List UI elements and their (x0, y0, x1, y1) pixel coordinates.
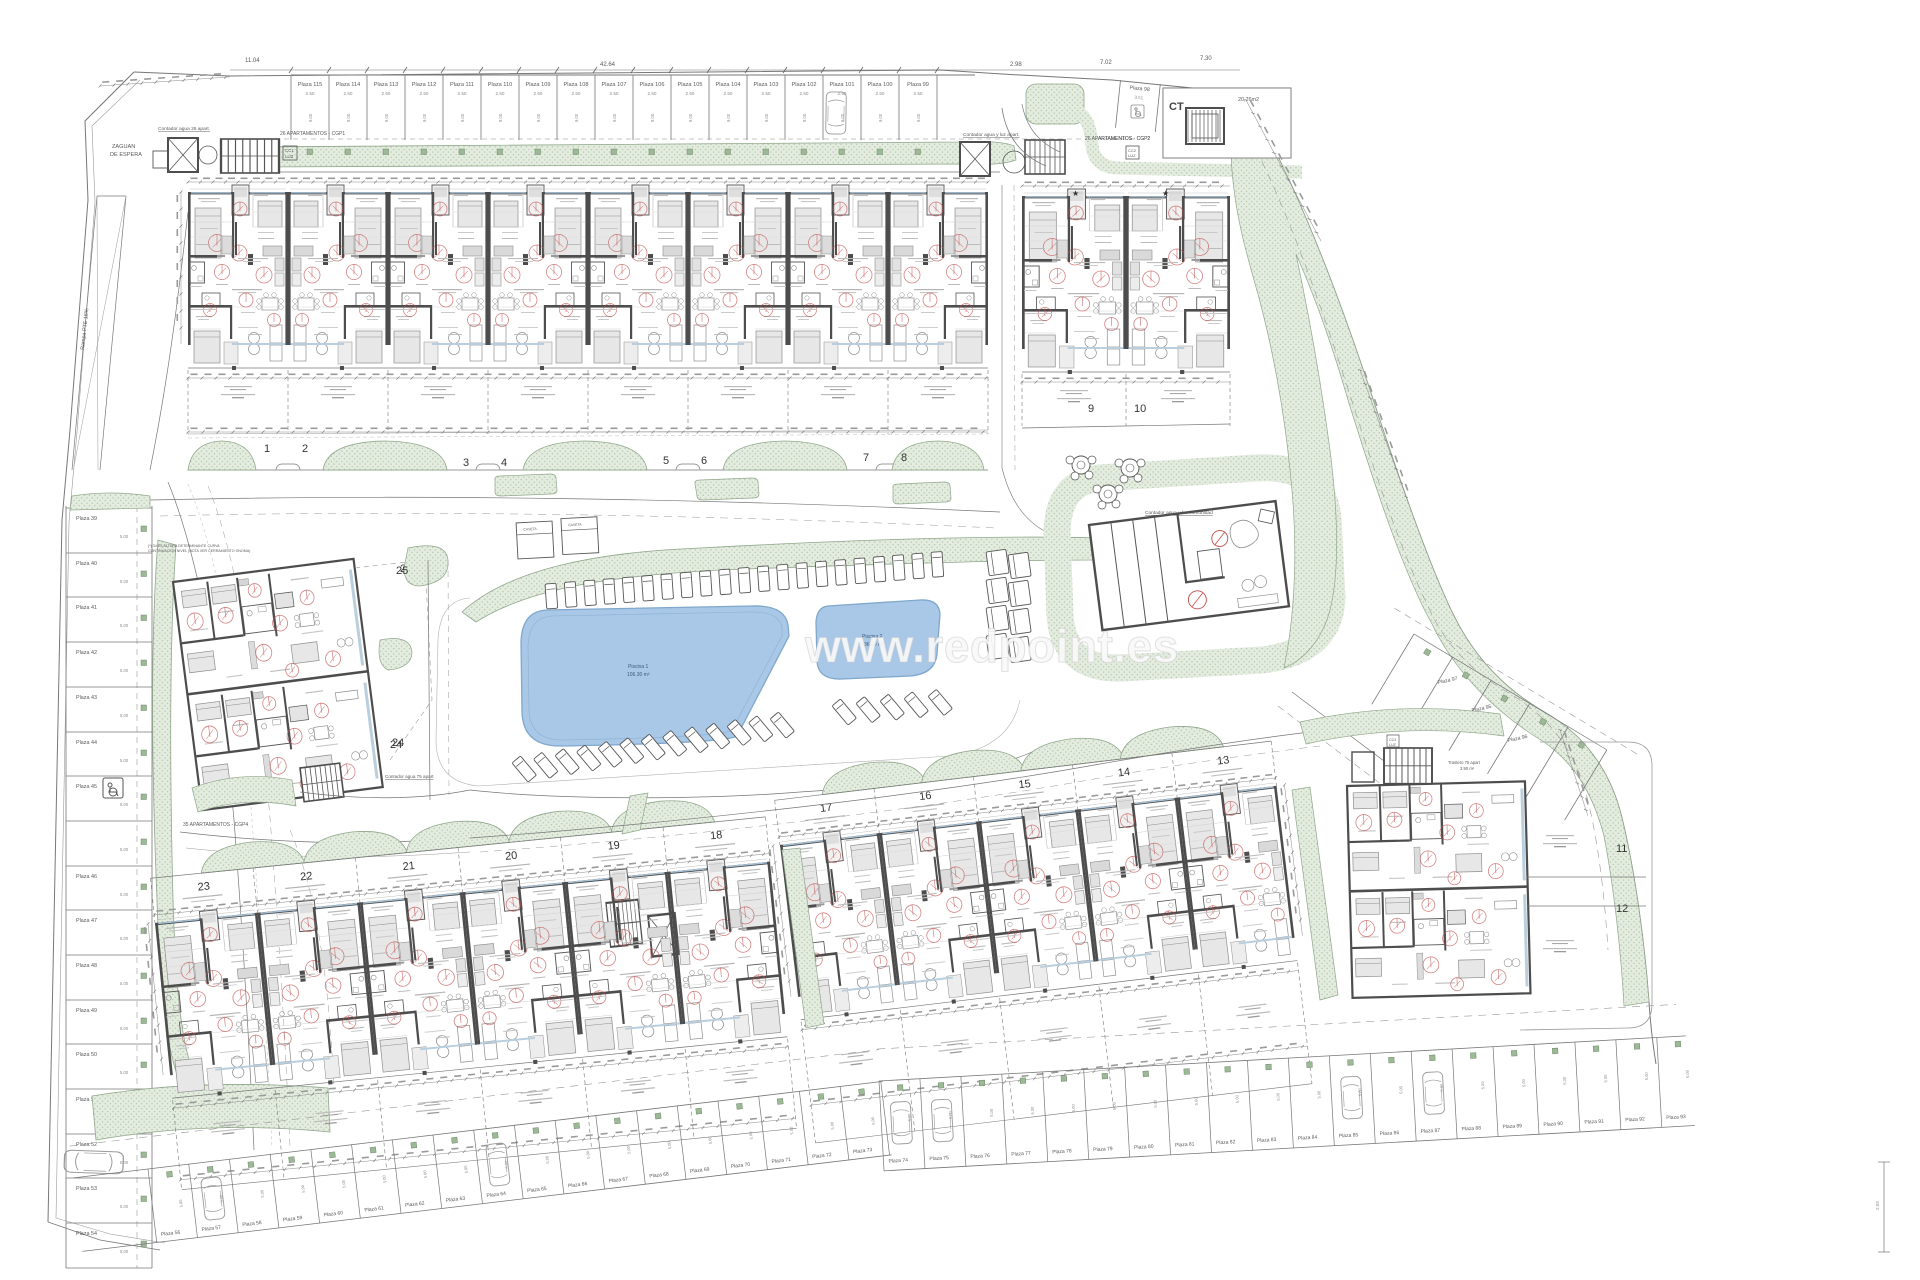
svg-text:2.50: 2.50 (496, 91, 505, 96)
svg-text:2.50: 2.50 (686, 91, 695, 96)
svg-text:★: ★ (1072, 189, 1079, 198)
svg-text:Plaza 75: Plaza 75 (929, 1155, 949, 1162)
svg-text:2.50: 2.50 (800, 91, 809, 96)
svg-text:5.00: 5.00 (748, 1131, 754, 1140)
svg-text:5.00: 5.00 (1480, 1081, 1485, 1090)
svg-text:9.00: 9.00 (650, 113, 655, 122)
svg-text:9.00: 9.00 (460, 113, 465, 122)
svg-text:9.00: 9.00 (764, 113, 769, 122)
svg-text:5.00: 5.00 (1234, 1094, 1239, 1103)
svg-text:5.00: 5.00 (1316, 1090, 1321, 1099)
svg-text:Plaza 53: Plaza 53 (76, 1186, 97, 1192)
svg-text:5.00: 5.00 (1644, 1071, 1649, 1080)
svg-text:23: 23 (197, 880, 210, 893)
svg-text:9.00: 9.00 (346, 113, 351, 122)
svg-text:5.00: 5.00 (120, 1204, 129, 1209)
svg-text:5.00: 5.00 (120, 668, 129, 673)
svg-text:15: 15 (1018, 778, 1032, 791)
svg-text:5.00: 5.00 (1562, 1076, 1567, 1085)
svg-text:5.00: 5.00 (544, 1155, 550, 1164)
svg-text:3.51: 3.51 (1134, 95, 1144, 101)
svg-text:2.50: 2.50 (762, 91, 771, 96)
svg-text:5.00: 5.00 (178, 1199, 184, 1208)
svg-text:9.00: 9.00 (612, 113, 617, 122)
svg-text:2.50: 2.50 (534, 91, 543, 96)
svg-text:Plaza 93: Plaza 93 (1666, 1114, 1686, 1121)
svg-text:5.00: 5.00 (381, 1174, 387, 1183)
svg-text:7: 7 (863, 452, 869, 464)
svg-text:5.00: 5.00 (120, 1026, 129, 1031)
svg-text:106.30 m²: 106.30 m² (627, 672, 650, 678)
svg-text:Plaza 48: Plaza 48 (76, 963, 97, 969)
svg-text:2.50: 2.50 (724, 91, 733, 96)
svg-text:5.00: 5.00 (1152, 1099, 1157, 1108)
svg-text:9.00: 9.00 (308, 113, 313, 122)
svg-text:20: 20 (505, 850, 518, 863)
svg-text:Plaza 88: Plaza 88 (1461, 1125, 1481, 1132)
svg-text:5.00: 5.00 (120, 623, 129, 628)
svg-text:22: 22 (300, 870, 313, 883)
svg-text:5.00: 5.00 (120, 713, 129, 718)
svg-text:Plaza 84: Plaza 84 (1298, 1135, 1318, 1142)
svg-text:Contador agua y luz comunidad: Contador agua y luz comunidad (1145, 510, 1213, 516)
svg-text:2.50: 2.50 (610, 91, 619, 96)
svg-text:Plaza 83: Plaza 83 (1257, 1137, 1277, 1144)
svg-text:5.00: 5.00 (120, 534, 129, 539)
svg-text:5.00: 5.00 (120, 758, 129, 763)
svg-text:14: 14 (1117, 766, 1131, 779)
svg-text:Plaza 74: Plaza 74 (888, 1158, 908, 1165)
svg-text:CASETA: CASETA (568, 523, 582, 528)
svg-text:Plaza 109: Plaza 109 (526, 82, 551, 88)
svg-text:5.00: 5.00 (829, 1121, 835, 1130)
svg-text:8: 8 (901, 452, 907, 464)
svg-text:Plaza 46: Plaza 46 (76, 874, 97, 880)
svg-text:35 APARTAMENTOS - CGP4: 35 APARTAMENTOS - CGP4 (183, 822, 248, 828)
svg-text:5.00: 5.00 (120, 802, 129, 807)
svg-text:9.00: 9.00 (384, 113, 389, 122)
svg-text:2.50: 2.50 (420, 91, 429, 96)
svg-text:2.03: 2.03 (1875, 1201, 1880, 1210)
svg-text:Piscina 1: Piscina 1 (628, 664, 649, 670)
svg-text:26 APARTAMENTOS - CGP2: 26 APARTAMENTOS - CGP2 (1085, 136, 1150, 142)
svg-text:Contador agua 26 apart.: Contador agua 26 apart. (158, 126, 210, 132)
svg-text:CT: CT (1169, 101, 1184, 113)
svg-text:Plaza 41: Plaza 41 (76, 605, 97, 611)
svg-text:24: 24 (390, 739, 402, 751)
svg-text:5.00: 5.00 (585, 1150, 591, 1159)
svg-text:9.00: 9.00 (498, 113, 503, 122)
svg-text:Plaza 91: Plaza 91 (1584, 1119, 1604, 1126)
svg-text:9.00: 9.00 (916, 113, 921, 122)
svg-text:21: 21 (402, 860, 415, 873)
svg-text:5.00: 5.00 (300, 1184, 306, 1193)
svg-text:5.00: 5.00 (120, 892, 129, 897)
svg-text:LUZ: LUZ (1128, 153, 1136, 158)
svg-text:Plaza 107: Plaza 107 (602, 82, 627, 88)
svg-text:5.00: 5.00 (989, 1108, 994, 1117)
svg-text:5.00: 5.00 (788, 1126, 794, 1135)
svg-text:4: 4 (501, 457, 507, 469)
svg-text:Plaza 111: Plaza 111 (450, 82, 474, 88)
svg-text:Plaza 89: Plaza 89 (1502, 1123, 1522, 1130)
svg-text:10: 10 (1134, 403, 1146, 415)
svg-text:Plaza 43: Plaza 43 (76, 695, 97, 701)
svg-text:11: 11 (1616, 843, 1627, 855)
svg-text:9.00: 9.00 (726, 113, 731, 122)
svg-text:Plaza 102: Plaza 102 (792, 82, 817, 88)
svg-text:42.64: 42.64 (600, 62, 616, 68)
svg-text:5.00: 5.00 (120, 1160, 129, 1165)
svg-text:5.00: 5.00 (626, 1145, 632, 1154)
svg-text:18: 18 (710, 829, 723, 842)
svg-text:2.50: 2.50 (344, 91, 353, 96)
svg-text:★: ★ (1162, 189, 1169, 198)
svg-text:25: 25 (396, 565, 408, 577)
svg-text:2.50: 2.50 (876, 91, 885, 96)
svg-text:5.00: 5.00 (1275, 1092, 1280, 1101)
svg-text:Plaza 86: Plaza 86 (1380, 1130, 1400, 1137)
svg-text:Plaza 42: Plaza 42 (76, 650, 97, 656)
svg-text:Plaza 79: Plaza 79 (1093, 1146, 1113, 1153)
svg-text:5.00: 5.00 (341, 1179, 347, 1188)
svg-text:LUZ: LUZ (1389, 743, 1397, 747)
svg-text:Plaza 100: Plaza 100 (868, 82, 893, 88)
svg-text:Plaza 39: Plaza 39 (76, 516, 97, 522)
svg-text:7.02: 7.02 (1100, 60, 1112, 66)
svg-text:ZAGUAN: ZAGUAN (112, 144, 135, 150)
svg-text:2.98: 2.98 (1010, 62, 1022, 68)
svg-text:Plaza 105: Plaza 105 (678, 82, 703, 88)
svg-text:5.00: 5.00 (120, 1249, 129, 1254)
svg-text:Plaza 90: Plaza 90 (1543, 1121, 1563, 1128)
svg-text:Plaza 113: Plaza 113 (374, 82, 398, 88)
svg-text:5.00: 5.00 (120, 579, 129, 584)
svg-text:Plaza 92: Plaza 92 (1625, 1116, 1645, 1123)
svg-text:5.00: 5.00 (666, 1140, 672, 1149)
svg-text:Plaza 44: Plaza 44 (76, 740, 97, 746)
svg-text:Plaza 82: Plaza 82 (1216, 1139, 1236, 1146)
svg-text:5.00: 5.00 (870, 1116, 876, 1125)
svg-text:Plaza 85: Plaza 85 (1339, 1132, 1359, 1139)
svg-text:CC1: CC1 (285, 148, 294, 153)
svg-text:CASETA: CASETA (523, 527, 537, 532)
svg-text:9.00: 9.00 (802, 113, 807, 122)
svg-text:Plaza 115: Plaza 115 (298, 82, 322, 88)
svg-text:5.00: 5.00 (120, 847, 129, 852)
svg-text:Plaza 40: Plaza 40 (76, 561, 97, 567)
svg-text:Plaza 45: Plaza 45 (76, 784, 97, 790)
svg-text:20,76m2: 20,76m2 (1238, 97, 1259, 103)
svg-text:7.30: 7.30 (1200, 56, 1212, 62)
svg-text:Plaza 110: Plaza 110 (488, 82, 512, 88)
svg-text:11.04: 11.04 (245, 58, 260, 64)
svg-text:(*) 34 ES ALTURA DETERMINANTE: (*) 34 ES ALTURA DETERMINANTE CURVA (148, 544, 220, 548)
svg-text:Plaza 47: Plaza 47 (76, 918, 97, 924)
svg-text:5.00: 5.00 (1193, 1097, 1198, 1106)
svg-text:Plaza 104: Plaza 104 (716, 82, 741, 88)
svg-text:9: 9 (1088, 403, 1094, 415)
svg-text:Plaza 78: Plaza 78 (1052, 1148, 1072, 1155)
svg-text:5.00: 5.00 (1603, 1074, 1608, 1083)
svg-text:Trastero 75 apart: Trastero 75 apart (1448, 760, 1481, 765)
svg-text:CC3: CC3 (1389, 738, 1396, 742)
svg-text:CONTINUACION NIVEL (NOTA VER C: CONTINUACION NIVEL (NOTA VER CERRAMIENTO… (148, 549, 250, 553)
svg-text:Plaza 108: Plaza 108 (564, 82, 589, 88)
svg-text:5.00: 5.00 (259, 1189, 265, 1198)
svg-text:5: 5 (663, 455, 669, 467)
svg-text:9.00: 9.00 (878, 113, 883, 122)
svg-text:Plaza 52: Plaza 52 (76, 1142, 97, 1148)
svg-text:Plaza 81: Plaza 81 (1175, 1141, 1195, 1148)
svg-text:Plaza 99: Plaza 99 (907, 82, 929, 88)
svg-text:2.50: 2.50 (382, 91, 391, 96)
svg-text:2.50: 2.50 (306, 91, 315, 96)
svg-text:5.00: 5.00 (1398, 1085, 1403, 1094)
svg-text:9.00: 9.00 (422, 113, 427, 122)
svg-text:DE ESPERA: DE ESPERA (110, 152, 142, 158)
svg-text:Contador agua y luz apart.: Contador agua y luz apart. (963, 132, 1020, 138)
svg-text:5.00: 5.00 (1521, 1078, 1526, 1087)
svg-text:5.00: 5.00 (1685, 1069, 1690, 1078)
svg-text:Plaza 76: Plaza 76 (970, 1153, 990, 1160)
svg-text:5.00: 5.00 (463, 1165, 469, 1174)
svg-text:Plaza 106: Plaza 106 (640, 82, 665, 88)
svg-text:9.00: 9.00 (574, 113, 579, 122)
svg-text:2: 2 (302, 443, 308, 455)
svg-text:13: 13 (1216, 754, 1230, 767)
svg-text:3.90 m²: 3.90 m² (1460, 766, 1475, 771)
svg-text:www.redpoint.es: www.redpoint.es (804, 620, 1179, 672)
svg-text:2.50: 2.50 (458, 91, 467, 96)
svg-text:9.00: 9.00 (688, 113, 693, 122)
svg-text:2.50: 2.50 (648, 91, 657, 96)
svg-text:Plaza 87: Plaza 87 (1421, 1128, 1441, 1135)
svg-text:Plaza 50: Plaza 50 (76, 1052, 97, 1058)
svg-text:5.00: 5.00 (120, 1070, 129, 1075)
svg-text:2.50: 2.50 (914, 91, 923, 96)
svg-text:Plaza 77: Plaza 77 (1011, 1151, 1031, 1158)
svg-text:Plaza 103: Plaza 103 (754, 82, 779, 88)
svg-text:5.00: 5.00 (422, 1169, 428, 1178)
svg-text:3: 3 (463, 457, 469, 469)
svg-text:Contador agua 75 apart: Contador agua 75 apart (385, 774, 434, 779)
svg-text:6: 6 (701, 455, 707, 467)
svg-text:Plaza 54: Plaza 54 (76, 1231, 97, 1237)
svg-text:26 APARTAMENTOS - CGP1: 26 APARTAMENTOS - CGP1 (280, 131, 345, 137)
svg-text:LUZ: LUZ (285, 154, 294, 159)
svg-text:Plaza 80: Plaza 80 (1134, 1144, 1154, 1151)
svg-text:Plaza 114: Plaza 114 (336, 82, 360, 88)
svg-text:9.00: 9.00 (536, 113, 541, 122)
svg-text:5.00: 5.00 (120, 981, 129, 986)
svg-text:5.00: 5.00 (1030, 1106, 1035, 1115)
svg-text:Plaza 112: Plaza 112 (412, 82, 436, 88)
svg-text:2.50: 2.50 (572, 91, 581, 96)
svg-text:1: 1 (264, 443, 270, 455)
svg-text:5.00: 5.00 (707, 1135, 713, 1144)
svg-text:5.00: 5.00 (120, 936, 129, 941)
svg-text:12: 12 (1616, 903, 1628, 915)
svg-text:Plaza 49: Plaza 49 (76, 1008, 97, 1014)
svg-text:5.00: 5.00 (1071, 1104, 1076, 1113)
svg-text:5.00: 5.00 (1112, 1101, 1117, 1110)
svg-text:Plaza 101: Plaza 101 (830, 82, 855, 88)
